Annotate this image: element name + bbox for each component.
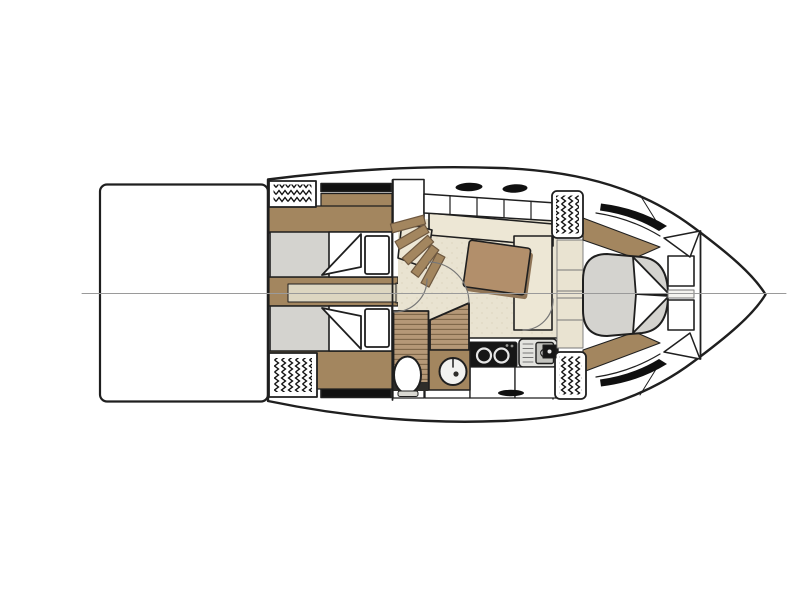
- toilet-base: [398, 391, 418, 397]
- vent-hatch-aft-starboard-grille: [274, 358, 312, 392]
- dinette-table-top: [463, 240, 531, 295]
- aft-berth-port: [270, 232, 392, 277]
- vent-hatch-forward-port-grille: [556, 196, 579, 234]
- speaker-dot: [548, 350, 552, 354]
- berth-starboard-pillow: [365, 309, 389, 347]
- dinette-table: [462, 240, 533, 300]
- aft-cabin-port-window: [321, 184, 391, 192]
- aft-cabin-cabinet-port: [269, 206, 392, 233]
- berth-port-pillow: [365, 236, 389, 274]
- aft-berth-starboard: [270, 306, 392, 351]
- plan-root: [82, 167, 786, 422]
- cooktop-knob: [506, 344, 509, 347]
- vent-hatch-aft-port-grille: [274, 185, 312, 204]
- nightstand-starboard: [668, 300, 694, 330]
- yacht-floorplan-canvas: [0, 0, 800, 601]
- nightstand-port: [668, 256, 694, 286]
- washbasin-drain: [453, 371, 458, 376]
- toilet: [394, 357, 421, 394]
- cooktop: [467, 342, 517, 367]
- cooktop-knob: [511, 345, 514, 348]
- aft-cabin-starboard-window: [321, 389, 391, 398]
- cabinet-handle: [498, 390, 524, 396]
- yacht-floorplan: [0, 0, 800, 601]
- vent-hatch-forward-starboard-grille: [559, 357, 582, 395]
